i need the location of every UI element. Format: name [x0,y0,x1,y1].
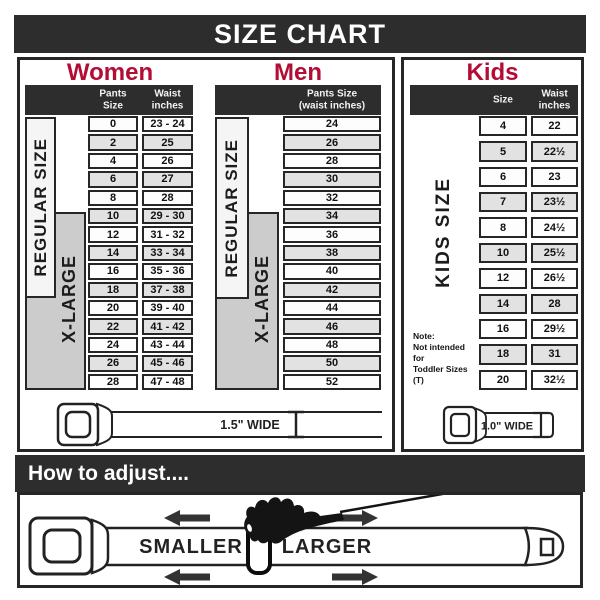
size-chart-infographic: SIZE CHART Women Men Pants Size Waist in… [0,0,600,600]
table-cell: 32 [283,190,381,206]
kids-size-header: Size [479,94,527,106]
table-cell: 22 [531,116,578,136]
table-cell: 28 [283,153,381,169]
how-to-adjust-bar: How to adjust.... [15,455,585,492]
adult-belt-width-label: 1.5" WIDE [220,418,279,432]
table-cell: 47 - 48 [142,374,193,390]
men-regular-box: REGULAR SIZE [215,117,249,299]
table-cell: 8 [479,217,527,237]
women-waist-column: 23 - 242526272829 - 3031 - 3233 - 3435 -… [142,116,193,390]
men-table-header: Pants Size (waist inches) [215,85,381,115]
table-cell: 41 - 42 [142,318,193,334]
adult-belt-illustration: 1.5" WIDE [38,401,392,448]
table-cell: 32½ [531,370,578,390]
kids-belt-illustration: 1.0" WIDE [416,405,572,449]
adjust-belt-illustration: SMALLER LARGER [20,495,580,585]
table-cell: 26½ [531,268,578,288]
men-size-table: Pants Size (waist inches) REGULAR SIZE X… [215,85,381,390]
women-table-header: Pants Size Waist inches [25,85,193,115]
table-cell: 4 [88,153,138,169]
women-pants-column: 0246810121416182022242628 [88,116,138,390]
table-cell: 29½ [531,319,578,339]
table-cell: 26 [283,134,381,150]
smaller-label: SMALLER [139,536,243,558]
kids-size-label-wrap: KIDS SIZE [410,116,477,348]
table-cell: 25½ [531,243,578,263]
table-cell: 20 [88,300,138,316]
kids-table-body: KIDS SIZE Note: Not intended for Toddler… [410,116,578,390]
adjust-buckle-flare [92,520,108,573]
women-table-body: REGULAR SIZE X-LARGE 0246810121416182022… [25,116,193,390]
table-cell: 28 [531,294,578,314]
men-table-body: REGULAR SIZE X-LARGE 2426283032343638404… [215,116,381,390]
table-cell: 14 [88,245,138,261]
table-cell: 6 [88,171,138,187]
table-cell: 45 - 46 [142,355,193,371]
table-cell: 22 [88,318,138,334]
smaller-arrow-top-icon [164,510,210,526]
table-cell: 5 [479,141,527,161]
table-cell: 7 [479,192,527,212]
table-cell: 16 [88,263,138,279]
table-cell: 16 [479,319,527,339]
table-cell: 24 [283,116,381,132]
table-cell: 24½ [531,217,578,237]
table-cell: 23 - 24 [142,116,193,132]
table-cell: 26 [88,355,138,371]
table-cell: 31 [531,344,578,364]
table-cell: 28 [88,374,138,390]
women-pants-size-header: Pants Size [88,89,138,112]
women-xlarge-label: X-LARGE [59,255,80,343]
table-cell: 35 - 36 [142,263,193,279]
kids-size-column: 45678101214161820 [479,116,527,390]
kids-heading: Kids [404,59,581,87]
table-cell: 0 [88,116,138,132]
page-title: SIZE CHART [214,19,386,50]
table-cell: 6 [479,167,527,187]
table-cell: 28 [142,190,193,206]
kids-panel: Kids Size Waist inches KIDS SIZE Note: N… [401,57,584,452]
table-cell: 26 [142,153,193,169]
table-cell: 23 [531,167,578,187]
table-cell: 22½ [531,141,578,161]
kids-belt-width-label: 1.0" WIDE [481,421,533,433]
men-xlarge-label: X-LARGE [252,255,273,343]
table-cell: 10 [88,208,138,224]
table-cell: 33 - 34 [142,245,193,261]
men-heading: Men [208,59,388,87]
table-cell: 50 [283,355,381,371]
title-bar: SIZE CHART [14,15,586,53]
kids-note: Note: Not intended for Toddler Sizes (T) [413,331,477,386]
women-heading: Women [20,59,200,87]
table-cell: 18 [479,344,527,364]
table-cell: 12 [88,226,138,242]
women-waist-header: Waist inches [142,89,193,112]
table-cell: 2 [88,134,138,150]
adult-panel: Women Men Pants Size Waist inches REGULA… [17,57,395,452]
kids-size-table: Size Waist inches KIDS SIZE Note: Not in… [410,85,578,390]
table-cell: 8 [88,190,138,206]
table-cell: 18 [88,282,138,298]
table-cell: 27 [142,171,193,187]
men-size-column: 242628303234363840424446485052 [283,116,381,390]
how-to-adjust-title: How to adjust.... [28,462,189,486]
arm-line [340,495,465,512]
table-cell: 44 [283,300,381,316]
table-cell: 20 [479,370,527,390]
table-cell: 36 [283,226,381,242]
men-pants-size-header: Pants Size (waist inches) [283,89,381,112]
table-cell: 52 [283,374,381,390]
table-cell: 34 [283,208,381,224]
table-cell: 39 - 40 [142,300,193,316]
table-cell: 4 [479,116,527,136]
table-cell: 37 - 38 [142,282,193,298]
table-cell: 48 [283,337,381,353]
kids-waist-header: Waist inches [531,89,578,112]
smaller-arrow-bottom-icon [164,569,210,585]
women-xlarge-label-wrap: X-LARGE [52,212,86,386]
kids-waist-column: 2222½2323½24½25½26½2829½3132½ [531,116,578,390]
table-cell: 43 - 44 [142,337,193,353]
table-cell: 25 [142,134,193,150]
table-cell: 12 [479,268,527,288]
men-regular-size-label: REGULAR SIZE [222,139,242,278]
table-cell: 30 [283,171,381,187]
table-cell: 40 [283,263,381,279]
kids-size-label: KIDS SIZE [433,177,455,288]
larger-arrow-bottom-icon [332,569,378,585]
table-cell: 46 [283,318,381,334]
larger-label: LARGER [282,536,372,558]
table-cell: 29 - 30 [142,208,193,224]
adjust-illustration-box: SMALLER LARGER [17,492,583,588]
table-cell: 31 - 32 [142,226,193,242]
table-cell: 10 [479,243,527,263]
kids-table-header: Size Waist inches [410,85,578,115]
table-cell: 24 [88,337,138,353]
table-cell: 23½ [531,192,578,212]
table-cell: 42 [283,282,381,298]
men-xlarge-label-wrap: X-LARGE [245,212,279,386]
table-cell: 38 [283,245,381,261]
women-regular-size-label: REGULAR SIZE [31,138,51,277]
women-size-table: Pants Size Waist inches REGULAR SIZE X-L… [25,85,193,390]
table-cell: 14 [479,294,527,314]
